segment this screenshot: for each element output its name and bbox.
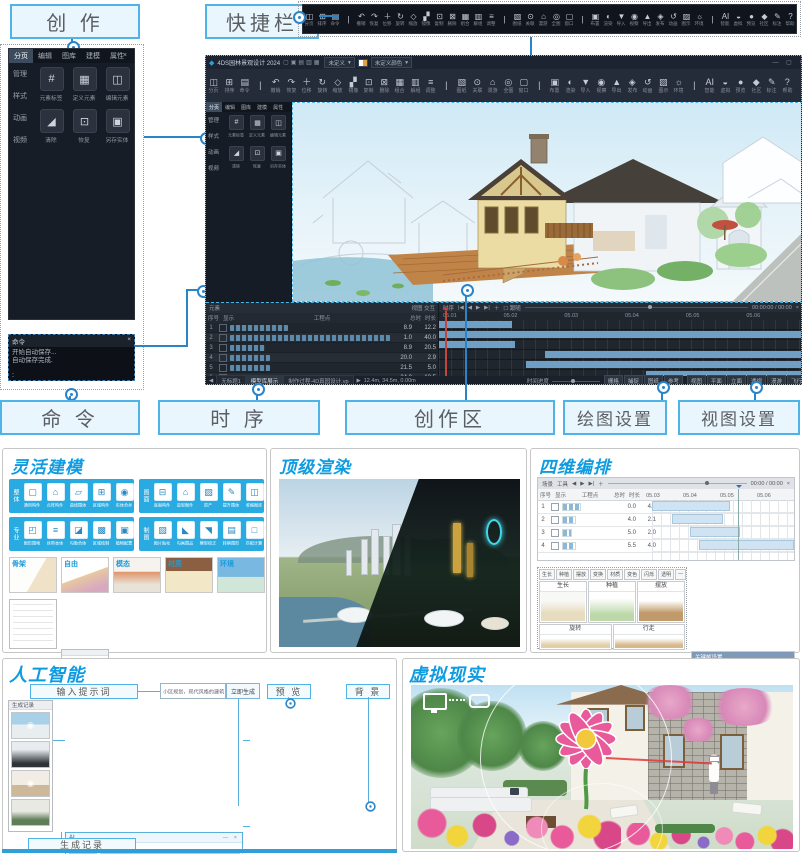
- sidebar-item[interactable]: 样式: [206, 128, 224, 144]
- tool-button[interactable]: ▦ 定义元素: [247, 115, 268, 141]
- toolbar-button[interactable]: ● 预览: [733, 77, 749, 94]
- file-icon[interactable]: ▤: [298, 60, 306, 66]
- sidebar-item[interactable]: 管理: [206, 112, 224, 128]
- toolbar-button[interactable]: ● 预览: [745, 12, 758, 27]
- gantt-row[interactable]: [439, 350, 802, 360]
- modeling-tool[interactable]: ✎提升围体: [220, 483, 243, 509]
- tool-button[interactable]: ◢ 清除: [226, 146, 247, 172]
- modeling-tool[interactable]: ⊟底面构件: [151, 483, 174, 509]
- toolbar-button[interactable]: ◈ 发布: [654, 12, 667, 27]
- close-icon[interactable]: ×: [118, 52, 132, 59]
- animation-tab[interactable]: 摆放: [573, 569, 589, 580]
- app-statusbar: ◀ 无标题1模型库展示制作过程-4D真园设计.vp ▶ 12.4m, 34.5m…: [206, 376, 802, 385]
- gantt-row[interactable]: [652, 526, 794, 539]
- toolbar-button[interactable]: ▤ 命令: [329, 12, 342, 27]
- toolbar-button[interactable]: ▲ 导出: [641, 12, 654, 27]
- toolbar-button-icon: ⊠: [380, 77, 388, 88]
- animation-tab[interactable]: 生长: [539, 569, 555, 580]
- status-play-icon[interactable]: ▶: [357, 378, 361, 384]
- feature-thumbnail-label: 骨架: [12, 559, 26, 569]
- toolbar-button[interactable]: ◫ 分页: [206, 77, 222, 94]
- toolbar-button-icon: ◈: [657, 12, 663, 21]
- toolbar-button[interactable]: ◇ 缩放: [330, 77, 346, 94]
- row-checkbox[interactable]: [551, 542, 559, 550]
- toolbar-button-icon: ▥: [411, 77, 420, 88]
- toolbar-button-label: 图纸: [457, 88, 467, 93]
- feature-thumbnail[interactable]: 自由: [61, 557, 109, 593]
- tool-button[interactable]: ◫ 编辑元素: [268, 115, 289, 141]
- feature-thumbnail[interactable]: 环境: [217, 557, 265, 593]
- row-checkbox[interactable]: [219, 344, 227, 352]
- row-task-tags[interactable]: [230, 335, 390, 341]
- draw-setting-button[interactable]: 捕捉: [624, 375, 643, 385]
- row-checkbox[interactable]: [219, 334, 227, 342]
- row-checkbox[interactable]: [219, 354, 227, 362]
- feature-thumbnail-label: 环境: [220, 559, 234, 569]
- gantt-bar[interactable]: [439, 321, 512, 328]
- gantt-bar[interactable]: [690, 527, 740, 537]
- close-icon[interactable]: ×: [787, 481, 790, 487]
- toolbar-button-icon: ●: [738, 77, 743, 88]
- gantt-row[interactable]: [439, 360, 802, 370]
- panel-tab[interactable]: 图库: [238, 102, 254, 112]
- panel-tab[interactable]: 建模: [254, 102, 270, 112]
- gantt-row[interactable]: [652, 539, 794, 552]
- modeling-tool-label: 底面构件: [154, 503, 170, 509]
- records-column: 生成记录 ◉ ◉: [8, 700, 53, 832]
- gantt-row[interactable]: [439, 330, 802, 340]
- toolbar-button[interactable]: ↶ 撤销: [268, 77, 284, 94]
- modeling-tool[interactable]: ▤转换围形: [220, 521, 243, 547]
- toolbar-button[interactable]: ▦ 组合: [392, 77, 408, 94]
- app-window: ◆ 4DS园林景观设计 2024 ▢▣▤▥▦ 未定义▾ 未定义颜色▾ — ▢ ×…: [205, 55, 802, 385]
- toolbar-button[interactable]: ✎ 标注: [764, 77, 780, 94]
- toolbar-button[interactable]: |: [576, 15, 589, 24]
- toolbar-button[interactable]: ⌂ 漫游: [537, 12, 550, 27]
- date-tick: 05.06: [755, 491, 792, 498]
- tool-button[interactable]: ⊡ 恢复: [247, 146, 268, 172]
- close-icon[interactable]: ×: [796, 305, 799, 311]
- row-task-tags[interactable]: [230, 355, 270, 361]
- file-icon[interactable]: ▦: [314, 60, 322, 66]
- toolbar-button[interactable]: ▥ 解组: [472, 12, 485, 27]
- close-icon[interactable]: ×: [234, 835, 239, 841]
- toolbar-button[interactable]: ⊞ 排序: [222, 77, 238, 94]
- toolbar-button[interactable]: ◆ 社区: [758, 12, 771, 27]
- toolbar-button-icon: ↷: [287, 77, 295, 88]
- record-thumbnail[interactable]: ◉: [11, 770, 50, 797]
- toolbar-button[interactable]: ↷ 恢复: [368, 12, 381, 27]
- toolbar-button[interactable]: ⊠ 删除: [446, 12, 459, 27]
- tab-scroll-icon[interactable]: ◀: [209, 378, 213, 384]
- row-task-tags[interactable]: [230, 325, 288, 331]
- toolbar-button[interactable]: ▢ 窗口: [516, 77, 532, 94]
- view-setting-button[interactable]: 平面: [707, 375, 726, 385]
- row-checkbox[interactable]: [219, 364, 227, 372]
- toolbar-button[interactable]: |: [253, 80, 269, 91]
- prev-icon[interactable]: |◀: [458, 305, 464, 311]
- modeling-tool[interactable]: ▢通用构件: [21, 483, 44, 509]
- row-checkbox[interactable]: [551, 503, 559, 511]
- file-icon[interactable]: ▢: [283, 60, 291, 66]
- sidebar-item[interactable]: 样式: [9, 85, 33, 107]
- color-combo[interactable]: 未定义颜色▾: [371, 57, 412, 68]
- modeling-tool-label: 造型图件: [177, 503, 193, 509]
- follow-checkbox[interactable]: ☐ 跟随: [503, 304, 520, 312]
- modeling-tool-icon: ⌂: [47, 483, 65, 501]
- tool-strip-2: 图面 ⊟底面构件 ⌂造型图件 ▨资产 ✎提升围体 ◫收缩图库: [139, 479, 264, 513]
- animation-thumbnail[interactable]: 种植: [588, 581, 636, 623]
- panel-tab[interactable]: 属性: [270, 102, 286, 112]
- row-task-tags[interactable]: [562, 529, 572, 537]
- toolbar-button[interactable]: |: [706, 15, 719, 24]
- sidebar-item[interactable]: 视频: [206, 160, 224, 176]
- prompt-input[interactable]: 小区规划，现代风格的建筑，灰白色调外墙，中高层住宅小区↺: [160, 683, 226, 699]
- feature-thumbnail[interactable]: 材质: [165, 557, 213, 593]
- gantt-bar[interactable]: [699, 540, 794, 550]
- modeling-tool[interactable]: ▧图片贴址: [151, 521, 174, 547]
- row-total: 20.0: [390, 355, 414, 361]
- modeling-tool[interactable]: ◫收缩图库: [243, 483, 266, 509]
- col-show: 显示: [221, 313, 236, 323]
- toolbar-button[interactable]: ▣ 布置: [589, 12, 602, 27]
- gantt-row[interactable]: [652, 513, 794, 526]
- zoom-slider[interactable]: [525, 307, 748, 308]
- modeling-tool[interactable]: ◰图形围地: [21, 521, 44, 547]
- row-duration: 5.0: [414, 365, 438, 371]
- modeling-tool-icon: ▨: [200, 483, 218, 501]
- modeling-tool[interactable]: ▨资产: [197, 483, 220, 509]
- row-checkbox[interactable]: [219, 324, 227, 332]
- row-task-tags[interactable]: [562, 542, 576, 550]
- animation-thumbnail[interactable]: 行走: [613, 624, 686, 650]
- animation-thumbnail[interactable]: 旋转: [539, 624, 612, 650]
- panel-tab[interactable]: 分页: [206, 102, 222, 112]
- row-task-tags[interactable]: [562, 516, 576, 524]
- add-icon[interactable]: ＋: [598, 480, 604, 488]
- tool-button[interactable]: ◫ 编辑元素: [101, 67, 134, 109]
- view-setting-button[interactable]: 视图: [687, 375, 706, 385]
- generate-button[interactable]: 立即生成: [226, 683, 260, 699]
- toolbar-button[interactable]: AI 智能: [702, 77, 718, 94]
- toolbar-button[interactable]: ◐ 渲染: [563, 77, 579, 94]
- gantt-bar[interactable]: [439, 331, 802, 338]
- panel-tab[interactable]: 编辑: [33, 49, 57, 63]
- gantt-row[interactable]: [439, 320, 802, 330]
- animation-thumbnail[interactable]: 摆放: [637, 581, 685, 623]
- animation-tab[interactable]: 变色: [624, 569, 640, 580]
- toolbar-button[interactable]: ↻ 旋转: [394, 12, 407, 27]
- tool-button[interactable]: ⊡ 恢复: [68, 109, 101, 151]
- toolbar-button[interactable]: ＋ 位移: [381, 12, 394, 27]
- file-icons[interactable]: ▢▣▤▥▦: [283, 59, 321, 66]
- progress-slider[interactable]: [552, 381, 600, 382]
- tool-button[interactable]: ▣ 另存实体: [101, 109, 134, 151]
- animation-thumbnail-image: [615, 635, 684, 648]
- sidebar-item[interactable]: 动画: [9, 107, 33, 129]
- tool-button-label: 元素标签: [40, 93, 63, 102]
- toolbar-button[interactable]: AI 智能: [719, 12, 732, 27]
- gantt-bar[interactable]: [439, 341, 515, 348]
- layer-combo[interactable]: 未定义▾: [324, 57, 354, 68]
- modeling-tool[interactable]: ◪勾勒合体: [67, 521, 90, 547]
- color-swatch[interactable]: [358, 59, 368, 67]
- draw-setting-button[interactable]: 栅格: [604, 375, 623, 385]
- modeling-tool[interactable]: □匹配计算: [243, 521, 266, 547]
- tool-button[interactable]: ◢ 清除: [35, 109, 68, 151]
- toolbar-button[interactable]: ⊙ 关联: [524, 12, 537, 27]
- zoom-slider[interactable]: [608, 483, 747, 484]
- toolbar-button[interactable]: ↺ 动画: [640, 77, 656, 94]
- modeling-tool-icon: ▣: [116, 521, 134, 539]
- record-thumbnail[interactable]: [11, 799, 50, 826]
- toolbar-button[interactable]: |: [532, 80, 548, 91]
- panel-tab[interactable]: 图库: [57, 49, 81, 63]
- toolbar-button-label: 智能: [721, 21, 730, 26]
- toolbar-button[interactable]: ◒ 虚拟: [718, 77, 734, 94]
- timeline-row[interactable]: 2 1.0 40.0: [206, 333, 438, 343]
- feature-thumbnail[interactable]: 模态: [113, 557, 161, 593]
- toolbar-button[interactable]: ＋ 位移: [299, 77, 315, 94]
- tool-button[interactable]: # 元素标签: [226, 115, 247, 141]
- minimize-icon[interactable]: —: [223, 835, 231, 841]
- toolbar-button[interactable]: ◒ 虚拟: [732, 12, 745, 27]
- animation-tab[interactable]: 变换: [590, 569, 606, 580]
- modeling-tool[interactable]: ▩区域绘制: [90, 521, 113, 547]
- animation-tab[interactable]: 闪烁: [641, 569, 657, 580]
- tool-button-label: 清除: [46, 135, 57, 144]
- toolbar-button[interactable]: ↺ 动画: [667, 12, 680, 27]
- view-setting-button[interactable]: 立面: [727, 375, 746, 385]
- toolbar-button[interactable]: ▢ 窗口: [563, 12, 576, 27]
- toolbar-button[interactable]: ▞ 镜像: [346, 77, 362, 94]
- timeline-row[interactable]: 5 21.5 5.0: [206, 363, 438, 373]
- toolbar-button-icon: ↺: [670, 12, 677, 21]
- toolbar-button[interactable]: ◎ 全图: [550, 12, 563, 27]
- toolbar-button[interactable]: ▨ 图示: [680, 12, 693, 27]
- toolbar-button[interactable]: ▼ 导入: [615, 12, 628, 27]
- toolbar-button-icon: ≡: [489, 12, 494, 21]
- modeling-tool[interactable]: ▣植物配置: [113, 521, 136, 547]
- toolbar-button[interactable]: ▧ 图纸: [454, 77, 470, 94]
- toolbar-button[interactable]: ▥ 解组: [408, 77, 424, 94]
- toolbar-button-icon: ◎: [504, 77, 512, 88]
- animation-tab[interactable]: 种植: [556, 569, 572, 580]
- toolbar-button[interactable]: ☼ 环境: [693, 12, 706, 27]
- play-icon[interactable]: ▶: [476, 305, 480, 311]
- animation-thumbnail-label: 种植: [589, 582, 635, 592]
- toolbar-button[interactable]: ▼ 导入: [578, 77, 594, 94]
- timeline-row[interactable]: 4 20.0 2.9: [206, 353, 438, 363]
- tool-button-icon: #: [229, 115, 244, 130]
- playhead[interactable]: [738, 489, 739, 560]
- toolbar-button-label: 社区: [751, 88, 761, 93]
- date-tick: 05.03: [560, 313, 621, 319]
- toolbar-button[interactable]: ☼ 环境: [671, 77, 687, 94]
- toolbar-button[interactable]: ▤ 命令: [237, 77, 253, 94]
- toolbar-button[interactable]: ▞ 镜像: [420, 12, 433, 27]
- tool-button[interactable]: ▦ 定义元素: [68, 67, 101, 109]
- view-setting-button[interactable]: 飞行: [787, 375, 802, 385]
- toolbar-button[interactable]: ▣ 布置: [547, 77, 563, 94]
- next-icon[interactable]: ▶|: [484, 305, 490, 311]
- gantt-bar[interactable]: [652, 501, 730, 511]
- play-icon[interactable]: ◉: [12, 713, 49, 738]
- panel-tab[interactable]: 编辑: [222, 102, 238, 112]
- playhead[interactable]: [445, 311, 447, 376]
- play-icon[interactable]: [12, 800, 49, 825]
- toolbar-button[interactable]: ↶ 撤销: [355, 12, 368, 27]
- modeling-tool[interactable]: ⌂点阵构件: [44, 483, 67, 509]
- play-icon[interactable]: ◉: [12, 771, 49, 796]
- toolbar-button-icon: ▼: [618, 12, 626, 21]
- toolbar-button[interactable]: ◐ 渲染: [602, 12, 615, 27]
- sidebar-item[interactable]: 管理: [9, 63, 33, 85]
- back-icon[interactable]: ◀: [572, 481, 576, 487]
- row-checkbox[interactable]: [551, 516, 559, 524]
- toolbar-button[interactable]: ▦ 组合: [459, 12, 472, 27]
- modeling-tool-icon: ▱: [70, 483, 88, 501]
- toolbar-button[interactable]: ↷ 恢复: [284, 77, 300, 94]
- toolbar-button[interactable]: ◇ 缩放: [407, 12, 420, 27]
- toolbar-button[interactable]: ⊡ 复制: [433, 12, 446, 27]
- gantt-bar[interactable]: [545, 351, 802, 358]
- row-task-tags[interactable]: [562, 503, 581, 511]
- tool-strip-1: 整体 ▢通用构件 ⌂点阵构件 ▱曲线围体 ⊞区域构件 ◉实体合并: [9, 479, 134, 513]
- canvas-viewport[interactable]: [292, 102, 802, 302]
- toolbar-button[interactable]: ◉ 视察: [594, 77, 610, 94]
- timeline-row[interactable]: 1 8.9 12.2: [206, 323, 438, 333]
- gantt-bar[interactable]: [672, 514, 723, 524]
- back-icon[interactable]: ◀: [468, 305, 472, 311]
- toolbar-button[interactable]: ◉ 视察: [628, 12, 641, 27]
- toolbar-button[interactable]: ≡ 调整: [423, 77, 439, 94]
- gantt-bar[interactable]: [526, 361, 802, 368]
- toolbar-button[interactable]: ↻ 旋转: [315, 77, 331, 94]
- city-render-image: [279, 479, 520, 647]
- modeling-tool[interactable]: ⊞区域构件: [90, 483, 113, 509]
- close-icon[interactable]: ×: [127, 336, 131, 346]
- toolbar-button[interactable]: ≡ 调整: [485, 12, 498, 27]
- toolbar-button[interactable]: ⊙ 关联: [470, 77, 486, 94]
- row-number: 2: [206, 335, 216, 341]
- modeling-tool-icon: ⊟: [154, 483, 172, 501]
- row-number: 2: [538, 517, 548, 523]
- toolbar-button[interactable]: ⌂ 漫游: [485, 77, 501, 94]
- panel-tab[interactable]: 建模: [81, 49, 105, 63]
- play-icon[interactable]: ▶: [580, 481, 584, 487]
- modeling-tool[interactable]: ◉实体合并: [113, 483, 136, 509]
- label-preview: 预 览: [267, 684, 311, 699]
- animation-tab[interactable]: 透明: [658, 569, 674, 580]
- toolbar-button-icon: ◇: [334, 77, 341, 88]
- feature-thumbnail[interactable]: 骨架: [9, 557, 57, 593]
- toolbar-button[interactable]: ▨ 图示: [656, 77, 672, 94]
- toolbar-button[interactable]: ▲ 导出: [609, 77, 625, 94]
- modeling-tool-label: 植物配置: [116, 541, 132, 547]
- play-icon[interactable]: [12, 742, 49, 767]
- toolbar-button-label: 预览: [736, 88, 746, 93]
- document-tab[interactable]: 制作过程-4D真园设计.vp: [283, 375, 353, 385]
- tool-button[interactable]: ▣ 另存实体: [268, 146, 289, 172]
- document-tab[interactable]: 无标题1: [216, 375, 246, 385]
- toolbar-button[interactable]: ? 帮助: [780, 77, 796, 94]
- toolbar-button[interactable]: ▧ 图纸: [511, 12, 524, 27]
- next-icon[interactable]: ▶|: [589, 481, 595, 487]
- animation-thumbnail[interactable]: 生长: [539, 581, 587, 623]
- animation-thumbnail-label: 行走: [614, 625, 685, 635]
- toolbar-button-label: 窗口: [519, 88, 529, 93]
- modeling-tool-icon: ▤: [223, 521, 241, 539]
- record-thumbnail[interactable]: [11, 741, 50, 768]
- gantt-row[interactable]: [652, 500, 794, 513]
- toolbar-button[interactable]: ◎ 全图: [501, 77, 517, 94]
- toolbar-button-icon: ⊙: [527, 12, 534, 21]
- command-prompt[interactable]: :: [12, 372, 14, 379]
- modeling-tool[interactable]: ≡丝带本体: [44, 521, 67, 547]
- record-thumbnail[interactable]: ◉: [11, 712, 50, 739]
- add-icon[interactable]: ＋: [494, 304, 500, 312]
- modeling-tool[interactable]: ◥模型校正: [197, 521, 220, 547]
- toolbar-button[interactable]: |: [439, 80, 455, 91]
- tool-button[interactable]: # 元素标签: [35, 67, 68, 109]
- animation-tab[interactable]: 材质: [607, 569, 623, 580]
- animation-tab[interactable]: —: [675, 569, 686, 580]
- sidebar-item[interactable]: 视频: [9, 129, 33, 151]
- timeline-row[interactable]: 3 8.9 20.5: [206, 343, 438, 353]
- row-number: 1: [206, 325, 216, 331]
- gantt-row[interactable]: [439, 340, 802, 350]
- document-tab[interactable]: 模型库展示: [246, 375, 284, 385]
- toolbar-button-icon: AI: [705, 77, 714, 88]
- toolbar-button[interactable]: |: [687, 80, 703, 91]
- connector: [186, 289, 188, 347]
- toolbar-button-icon: ◇: [410, 12, 416, 21]
- toolbar-button[interactable]: |: [498, 15, 511, 24]
- sidebar-item[interactable]: 动画: [206, 144, 224, 160]
- toolbar-button[interactable]: ⊠ 删除: [377, 77, 393, 94]
- toolbar-button-label: 旋转: [317, 88, 327, 93]
- connector-dot: [252, 383, 265, 396]
- toolbar-button[interactable]: ⊡ 复制: [361, 77, 377, 94]
- window-controls[interactable]: — ▢ ×: [772, 59, 802, 66]
- modeling-tool[interactable]: ⌂造型图件: [174, 483, 197, 509]
- panel-title: 四维编排: [539, 453, 611, 478]
- toolbar-button[interactable]: ◈ 发布: [625, 77, 641, 94]
- toolbar-button-icon: ▦: [395, 77, 404, 88]
- date-tick: 05.02: [500, 313, 561, 319]
- toolbar-button[interactable]: ? 帮助: [784, 12, 797, 27]
- toolbar-button[interactable]: ✎ 标注: [771, 12, 784, 27]
- row-task-tags[interactable]: [230, 365, 270, 371]
- door: [720, 734, 744, 770]
- command-log-line: 自动保存完成.: [12, 357, 131, 365]
- view-setting-button[interactable]: 漫游: [767, 375, 786, 385]
- toolbar-button-icon: ▞: [350, 77, 357, 88]
- toolbar-button-icon: ▤: [240, 77, 249, 88]
- modeling-tool[interactable]: ◣勾画围品: [174, 521, 197, 547]
- panel-tab[interactable]: 分页: [9, 49, 33, 63]
- animation-thumbnail-label: 旋转: [540, 625, 611, 635]
- file-icon[interactable]: ▥: [306, 60, 314, 66]
- toolbar-button[interactable]: ◆ 社区: [749, 77, 765, 94]
- row-checkbox[interactable]: [551, 529, 559, 537]
- toolbar-button[interactable]: ⊞ 排序: [316, 12, 329, 27]
- toolbar-button[interactable]: |: [342, 15, 355, 24]
- row-task-tags[interactable]: [230, 345, 265, 351]
- tool-button-label: 元素标签: [228, 133, 244, 139]
- modeling-tool[interactable]: ▱曲线围体: [67, 483, 90, 509]
